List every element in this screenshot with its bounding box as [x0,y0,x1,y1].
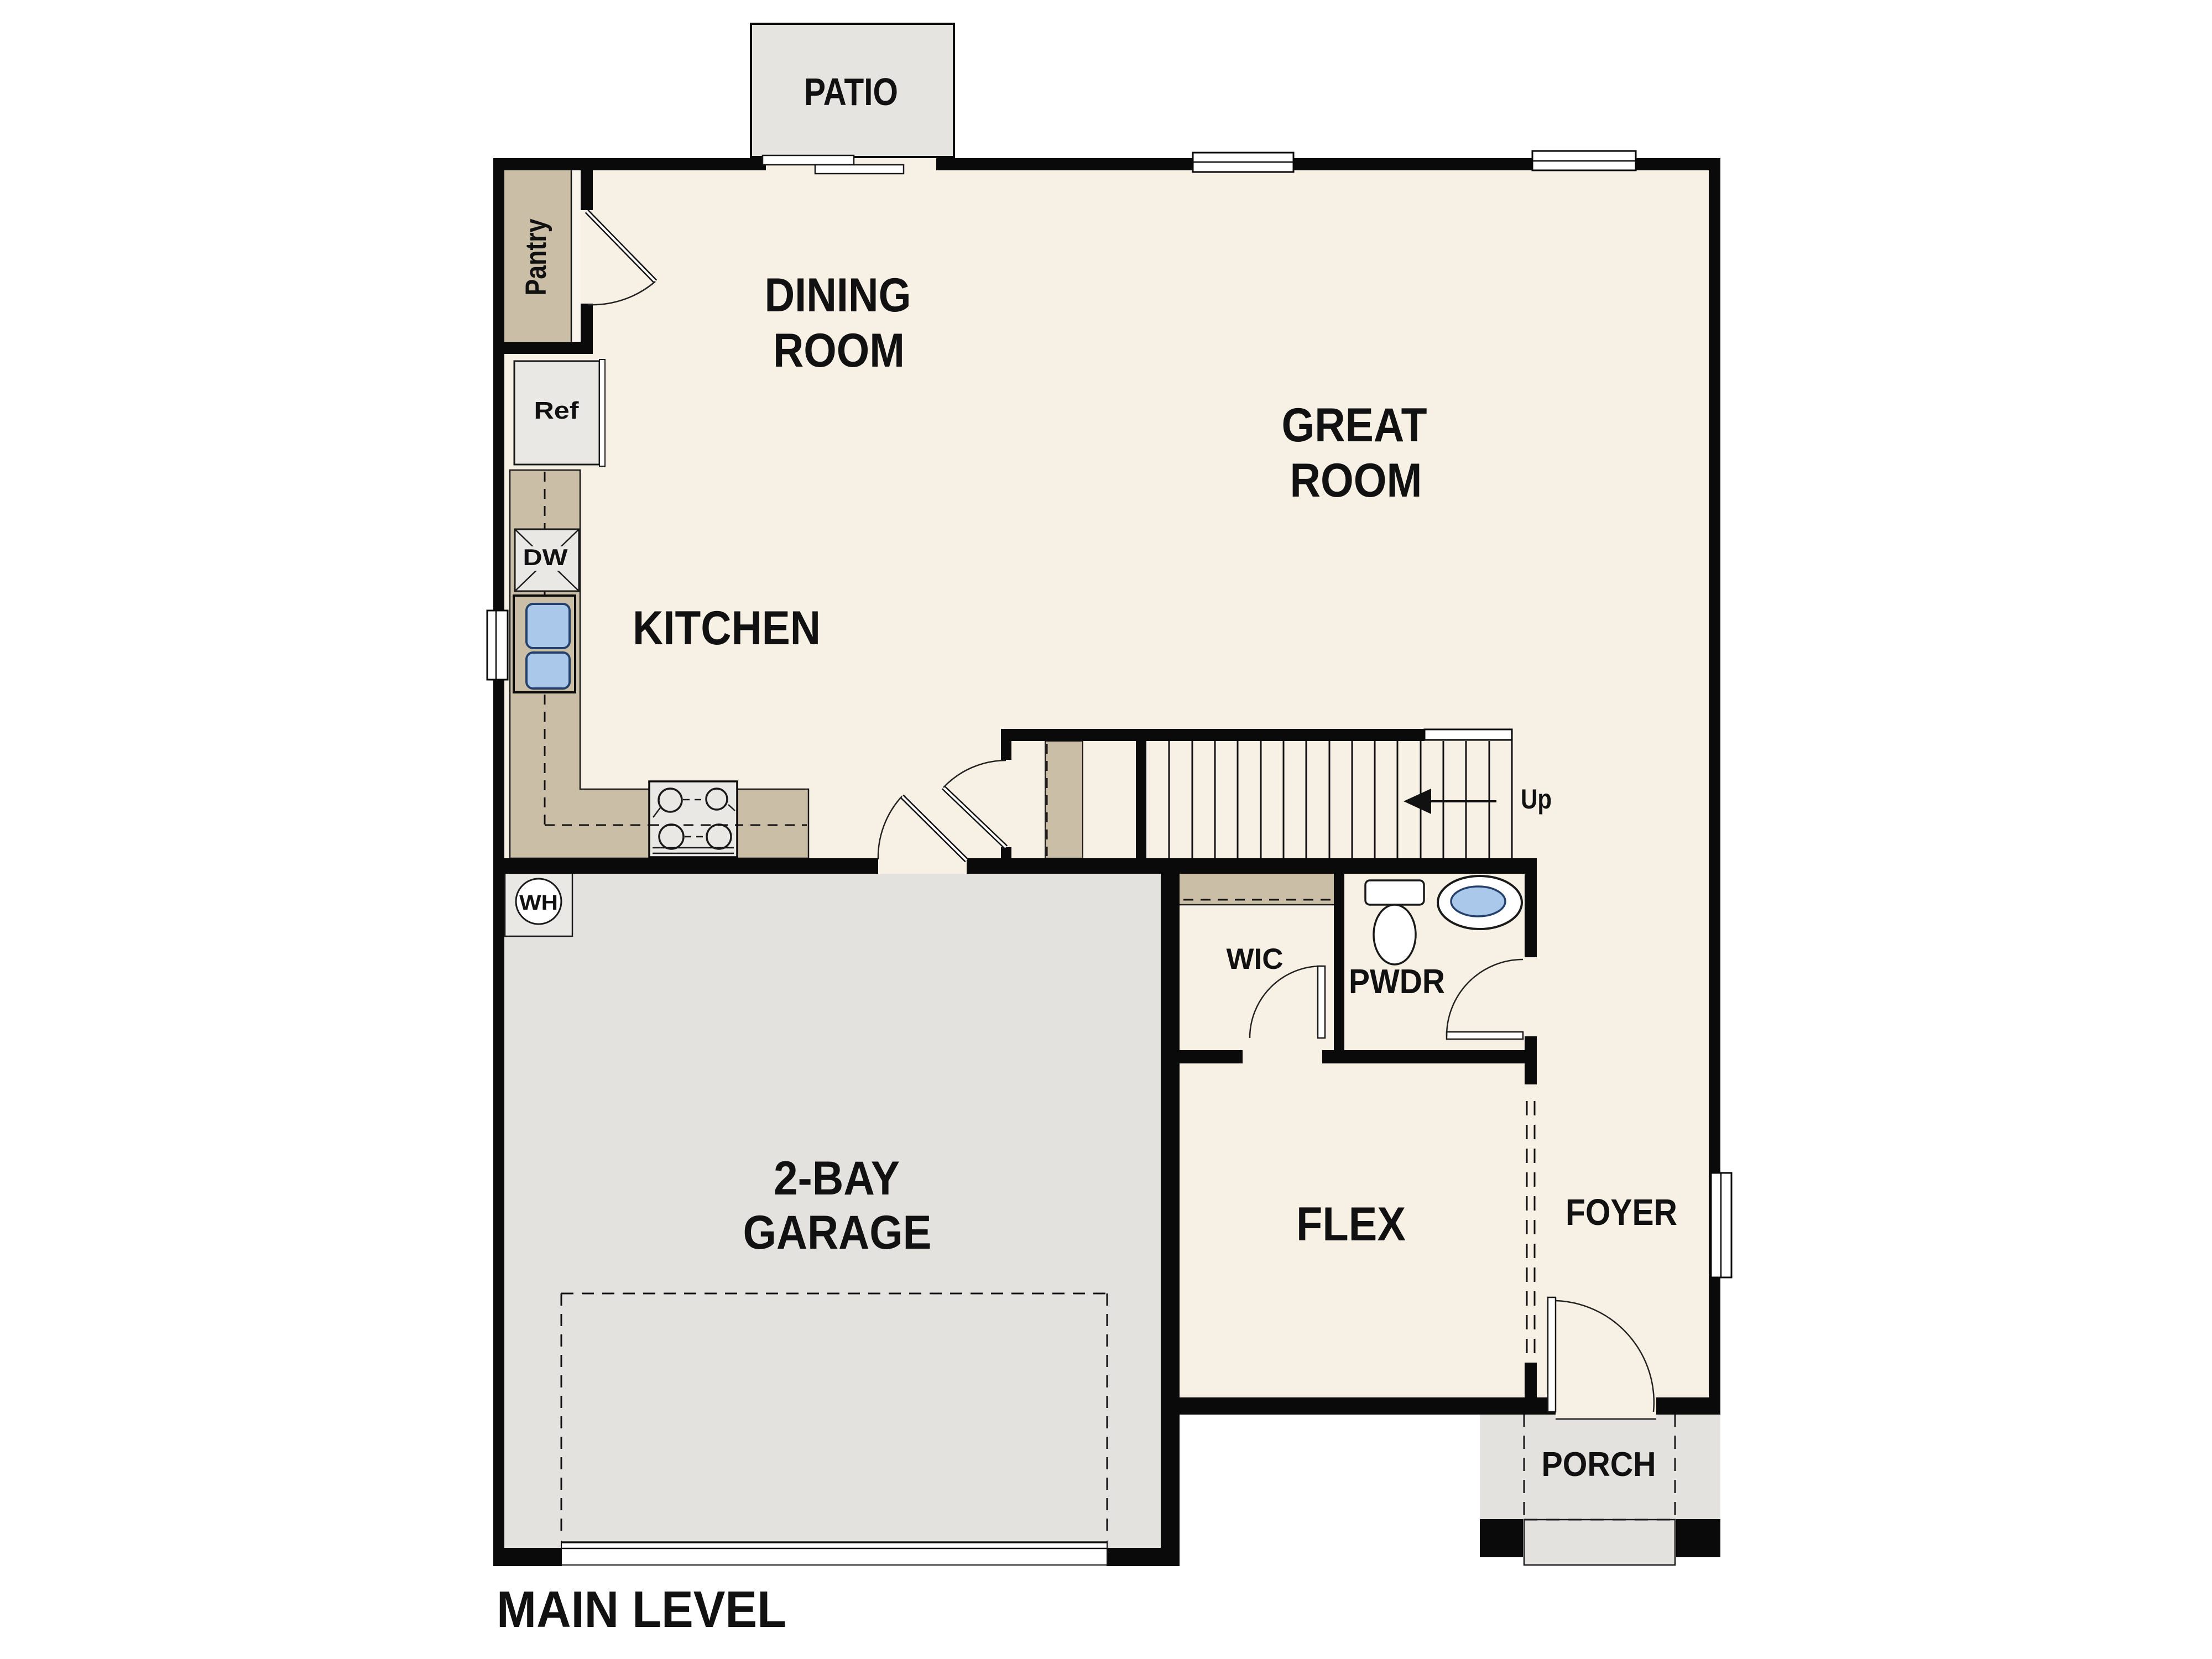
svg-text:WH: WH [519,891,558,915]
svg-text:PATIO: PATIO [804,70,898,113]
svg-text:Pantry: Pantry [520,218,552,295]
svg-text:ROOM: ROOM [1290,454,1422,507]
svg-text:GARAGE: GARAGE [743,1206,932,1259]
svg-text:2-BAY: 2-BAY [774,1152,900,1205]
svg-text:Up: Up [1521,784,1552,815]
svg-text:FLEX: FLEX [1296,1198,1406,1251]
svg-text:PWDR: PWDR [1349,963,1445,1001]
svg-text:DINING: DINING [765,269,911,322]
svg-text:MAIN LEVEL: MAIN LEVEL [497,1580,786,1638]
svg-text:Ref: Ref [534,397,579,424]
svg-text:GREAT: GREAT [1282,399,1427,452]
svg-text:DW: DW [523,544,568,570]
svg-text:KITCHEN: KITCHEN [633,602,821,655]
svg-text:PORCH: PORCH [1542,1446,1656,1484]
svg-text:WIC: WIC [1227,943,1284,975]
svg-text:FOYER: FOYER [1566,1192,1677,1233]
svg-text:ROOM: ROOM [773,324,905,377]
